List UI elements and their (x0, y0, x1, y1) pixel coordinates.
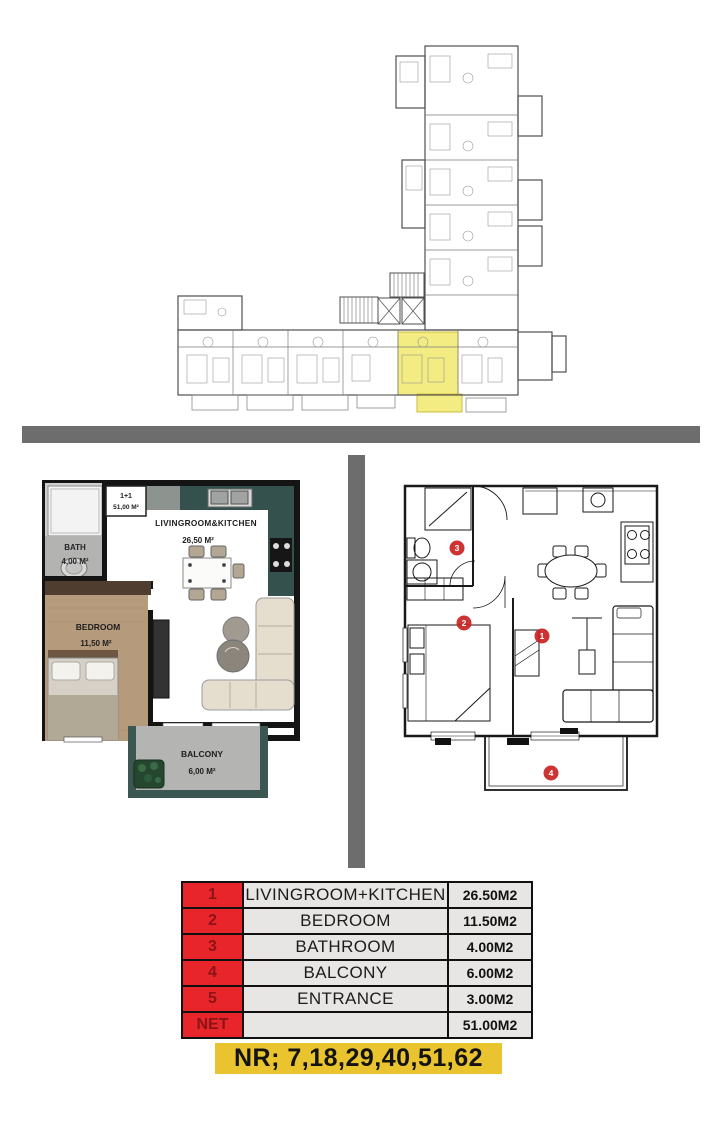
horizontal-divider-bar (22, 426, 700, 443)
row-number: 4 (183, 961, 242, 985)
tv-unit-icon (153, 620, 169, 698)
balcony-area (128, 726, 268, 798)
row-room-name: BATHROOM (244, 935, 447, 959)
marker-2: 2 (457, 616, 472, 631)
marker-3: 3 (450, 541, 465, 556)
technical-floor-plan: 1 2 3 4 (395, 478, 695, 818)
unit-label-box: 1+1 51,00 M² (106, 486, 146, 516)
living-area-label: 26,50 M² (182, 536, 214, 545)
balcony-outline (485, 736, 627, 790)
row-number: 2 (183, 909, 242, 933)
bath-area-label: 4,00 M² (61, 557, 88, 566)
bedroom-area-label: 11,50 M² (80, 639, 111, 648)
row-room-name: BALCONY (244, 961, 447, 985)
vertical-divider-bar (348, 455, 365, 868)
svg-text:1: 1 (540, 631, 545, 641)
row-room-name: BEDROOM (244, 909, 447, 933)
balcony-area-label: 6,00 M² (188, 767, 215, 776)
row-area: 4.00M2 (449, 935, 531, 959)
bedroom-area (45, 581, 151, 741)
unit-type-label: 1+1 (120, 493, 132, 500)
dining-table-icon (183, 558, 231, 588)
row-room-name: LIVINGROOM+KITCHEN (244, 883, 447, 907)
shower-icon (48, 486, 102, 536)
row-number: NET (183, 1013, 242, 1037)
dining-table-icon (545, 555, 597, 587)
marker-4: 4 (544, 766, 559, 781)
row-area: 51.00M2 (449, 1013, 531, 1037)
row-area: 6.00M2 (449, 961, 531, 985)
svg-text:2: 2 (462, 618, 467, 628)
stair-elevator-core (340, 273, 424, 324)
row-room-name: ENTRANCE (244, 987, 447, 1011)
svg-text:3: 3 (455, 543, 460, 553)
building-outline (178, 46, 566, 395)
bed-headboard (48, 650, 118, 658)
row-room-name (244, 1013, 447, 1037)
building-overview-plan (0, 0, 722, 422)
stove-icon (270, 538, 292, 572)
row-area: 3.00M2 (449, 987, 531, 1011)
unit-numbers-banner: NR; 7,18,29,40,51,62 (215, 1043, 502, 1074)
marker-1: 1 (535, 629, 550, 644)
plant-icon (134, 760, 164, 788)
row-area: 26.50M2 (449, 883, 531, 907)
bedroom-label: BEDROOM (76, 622, 120, 632)
row-area: 11.50M2 (449, 909, 531, 933)
furniture-hints-vertical (400, 54, 512, 286)
bath-label: BATH (64, 543, 86, 552)
row-number: 5 (183, 987, 242, 1011)
rendered-floor-plan: 1+1 51,00 M² BATH 4,00 M² LIVINGROOM&KIT… (40, 480, 300, 800)
coffee-table-icon (223, 617, 249, 643)
highlighted-unit (398, 332, 462, 412)
balcony-label: BALCONY (181, 749, 223, 759)
svg-text:4: 4 (549, 768, 554, 778)
row-number: 1 (183, 883, 242, 907)
living-label: LIVINGROOM&KITCHEN (155, 518, 257, 528)
floorplan-flyer: { "overview_plan": { "highlight_color": … (0, 0, 722, 1128)
area-table: 1 LIVINGROOM+KITCHEN 26.50M2 2 BEDROOM 1… (181, 881, 533, 1039)
row-number: 3 (183, 935, 242, 959)
unit-area-label: 51,00 M² (113, 504, 139, 511)
